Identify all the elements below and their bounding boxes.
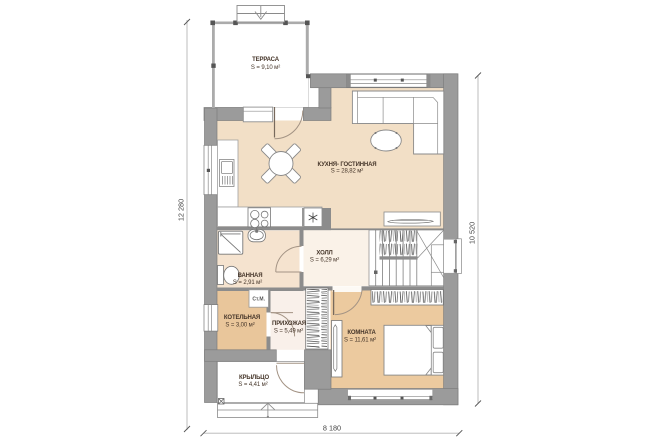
- svg-text:S = 28,82 м²: S = 28,82 м²: [331, 169, 364, 175]
- svg-text:КОТЕЛЬНАЯ: КОТЕЛЬНАЯ: [224, 315, 260, 321]
- svg-text:10 520: 10 520: [468, 222, 477, 244]
- svg-text:ВАННАЯ: ВАННАЯ: [238, 273, 263, 279]
- svg-text:КРЫЛЬЦО: КРЫЛЬЦО: [239, 375, 270, 381]
- svg-text:12 280: 12 280: [177, 199, 186, 221]
- svg-text:ТЕРРАСА: ТЕРРАСА: [252, 57, 280, 63]
- svg-text:S = 2,91 м²: S = 2,91 м²: [233, 280, 262, 286]
- svg-text:КОМНАТА: КОМНАТА: [347, 330, 376, 336]
- svg-text:S = 5,49 м²: S = 5,49 м²: [274, 329, 303, 335]
- svg-text:S = 3,00 м²: S = 3,00 м²: [225, 323, 254, 329]
- svg-text:S = 4,41 м²: S = 4,41 м²: [238, 382, 267, 388]
- svg-text:ПРИХОЖАЯ: ПРИХОЖАЯ: [272, 321, 306, 327]
- svg-text:S = 11,61 м²: S = 11,61 м²: [344, 338, 376, 344]
- svg-text:КУХНЯ- ГОСТИННАЯ: КУХНЯ- ГОСТИННАЯ: [318, 162, 377, 168]
- svg-text:Ст.М.: Ст.М.: [252, 297, 265, 303]
- svg-text:S = 6,29 м²: S = 6,29 м²: [310, 258, 339, 264]
- svg-text:8 180: 8 180: [323, 424, 341, 433]
- svg-text:S = 9,10 м²: S = 9,10 м²: [251, 65, 280, 71]
- svg-text:ХОЛЛ: ХОЛЛ: [316, 251, 332, 257]
